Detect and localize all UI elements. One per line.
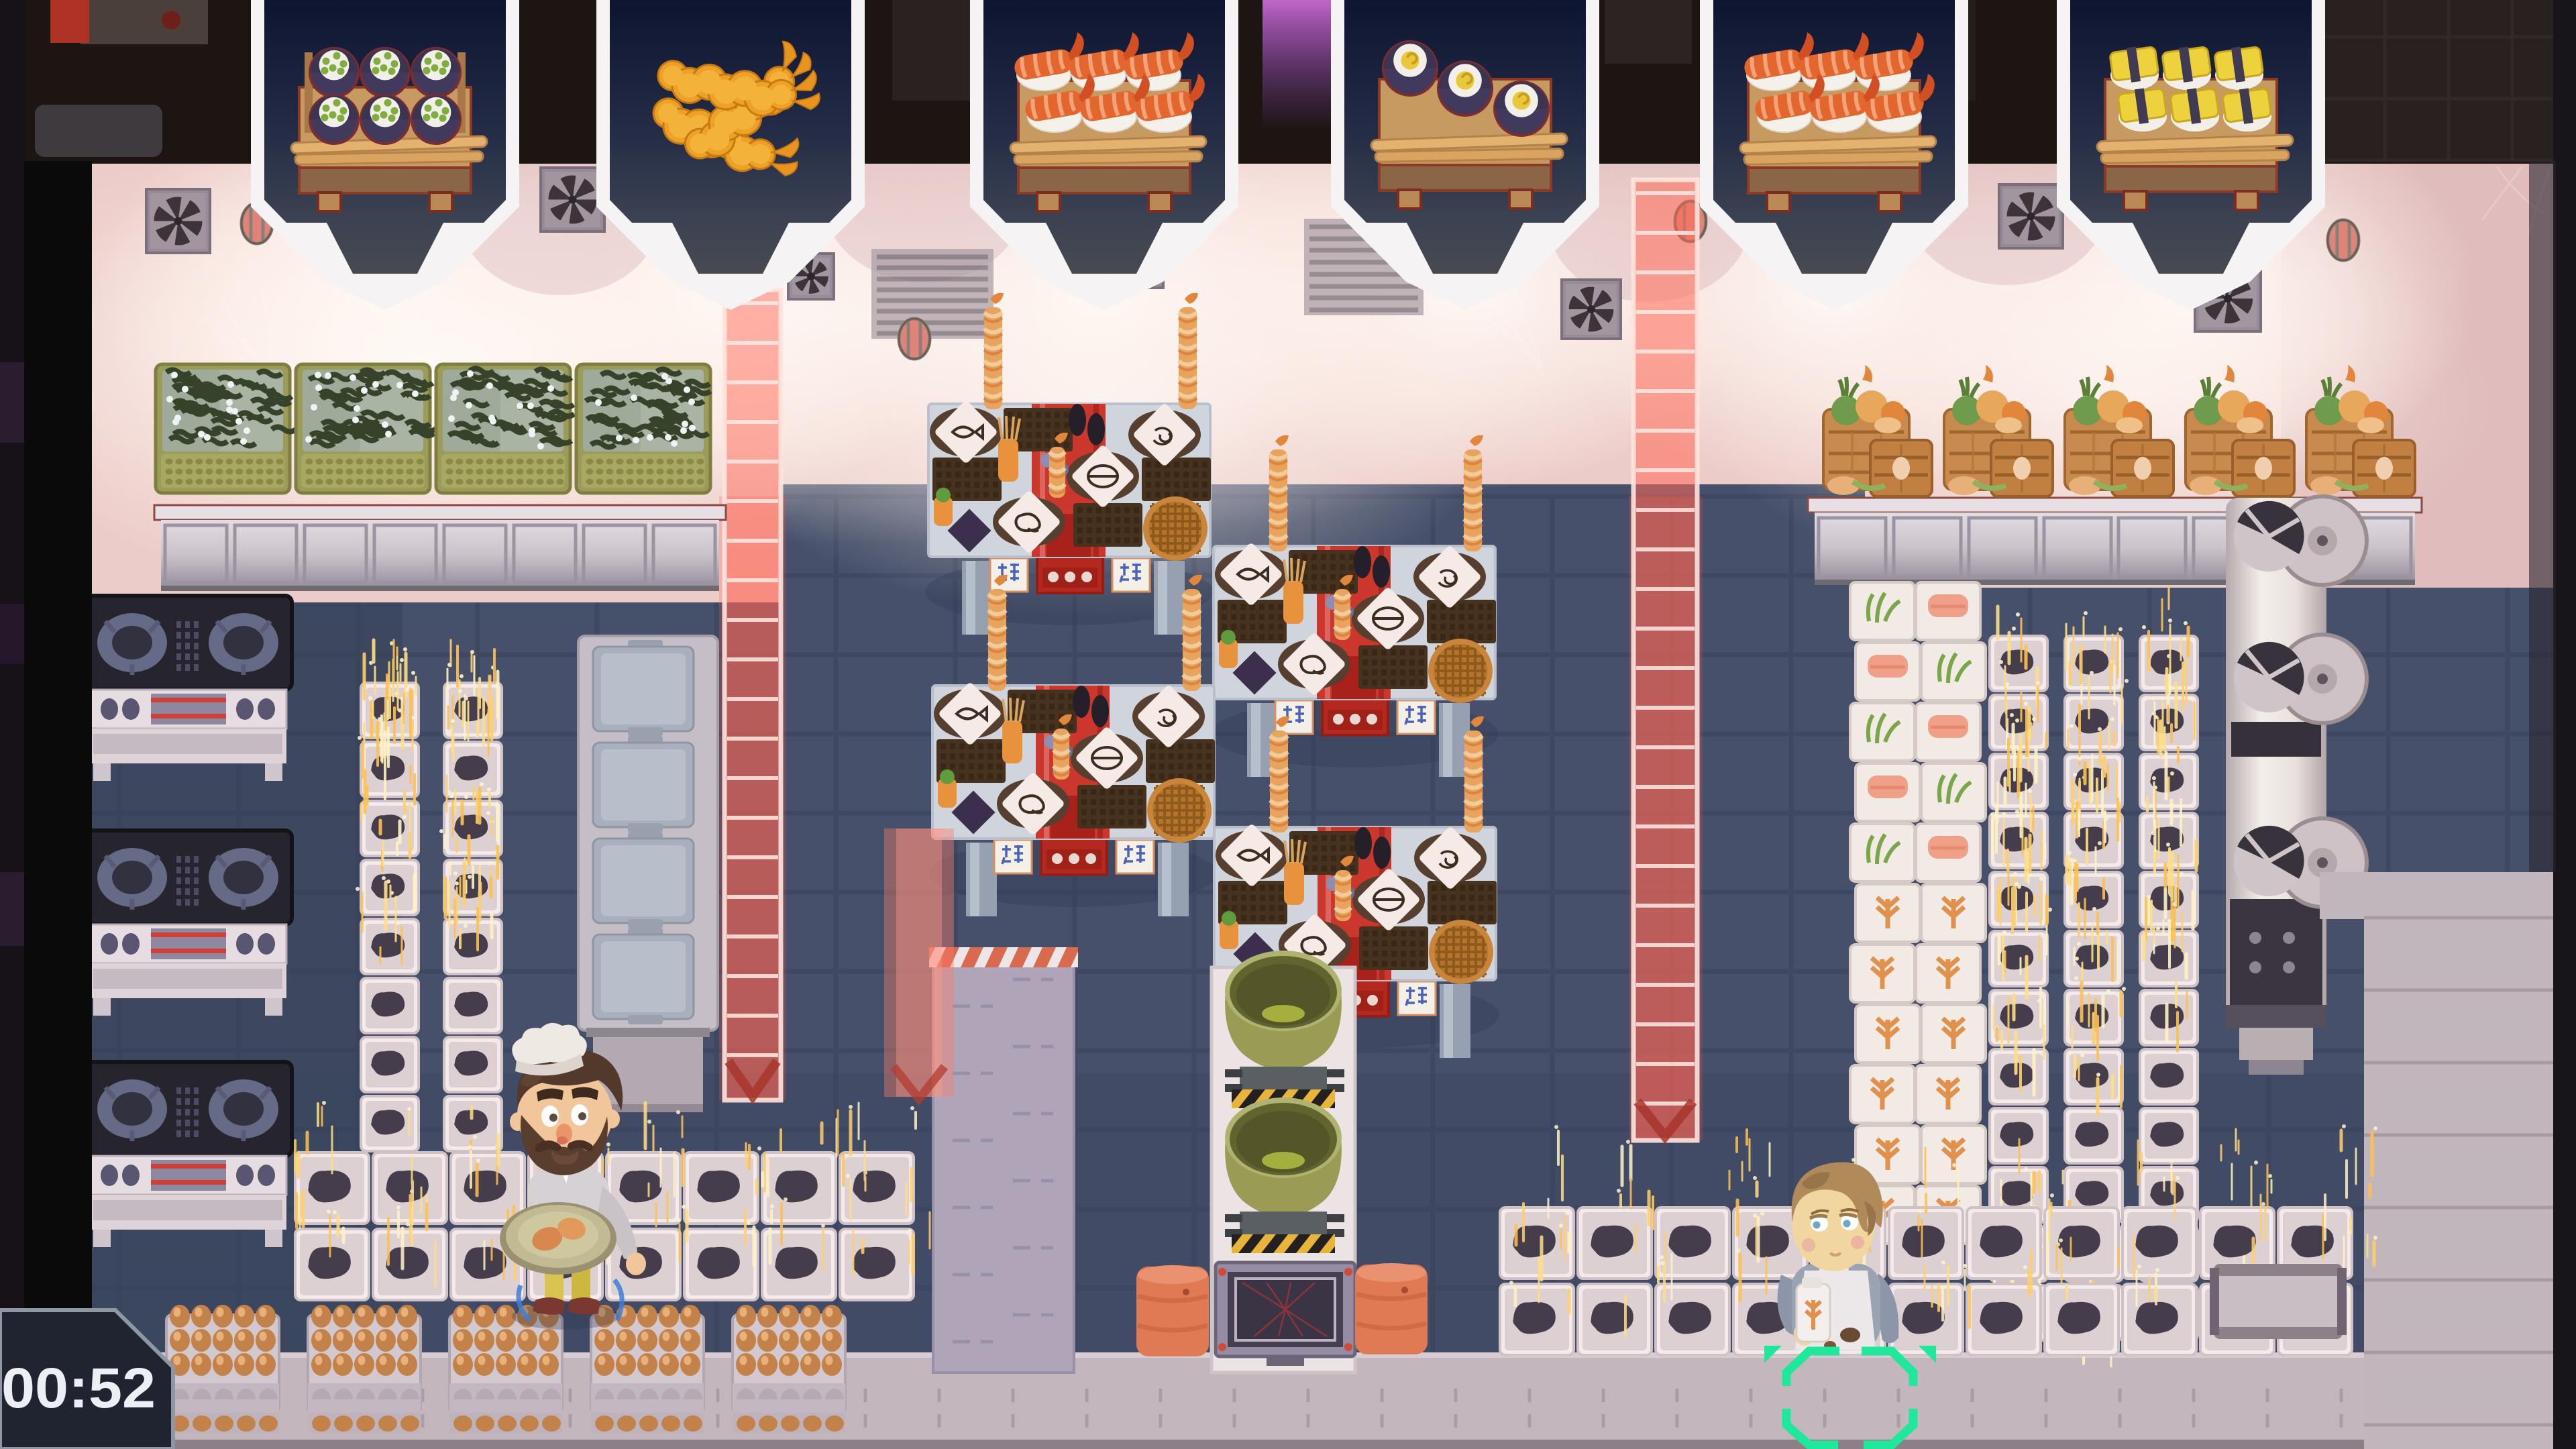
svg-text:00:52: 00:52: [1, 1356, 156, 1419]
